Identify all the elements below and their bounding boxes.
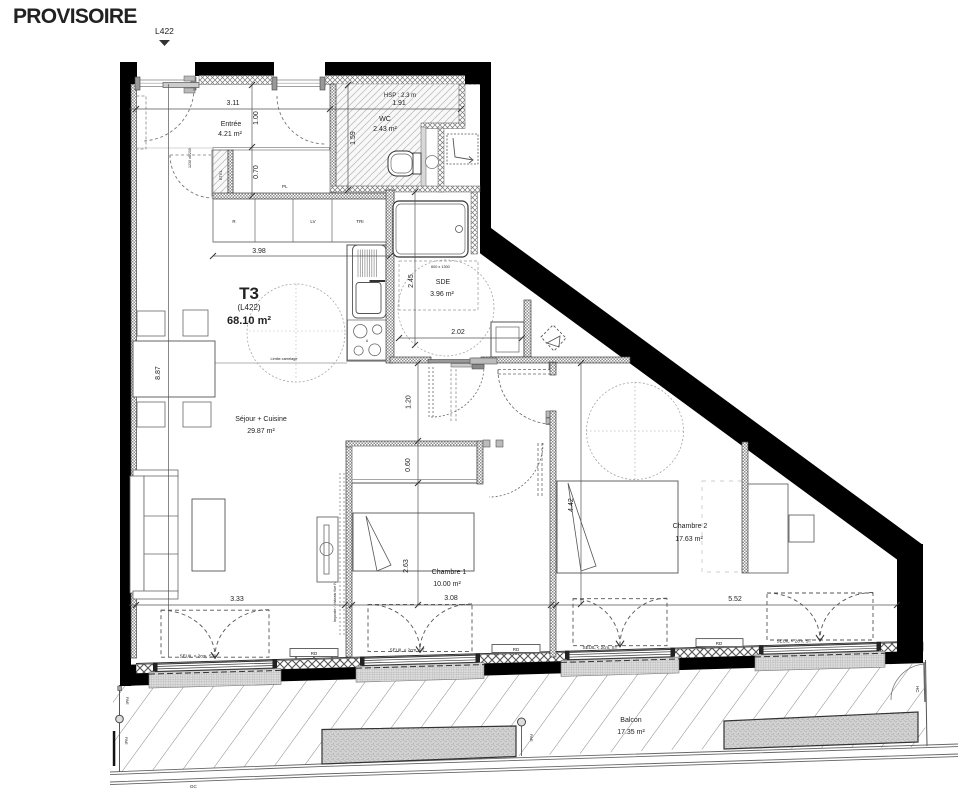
svg-text:0.60: 0.60 <box>405 458 412 472</box>
svg-text:SEUIL < 2cm, ST: SEUIL < 2cm, ST <box>777 639 812 644</box>
svg-text:T3: T3 <box>239 284 259 303</box>
svg-text:SDE: SDE <box>436 279 451 286</box>
svg-text:WC: WC <box>379 116 391 123</box>
svg-text:600 x 1300: 600 x 1300 <box>431 265 450 269</box>
svg-text:Entrée: Entrée <box>221 121 242 128</box>
svg-text:3.96 m²: 3.96 m² <box>430 291 454 298</box>
svg-text:SEUIL < 2cm, ST: SEUIL < 2cm, ST <box>180 654 215 659</box>
svg-text:PL: PL <box>282 184 288 189</box>
svg-text:L422: L422 <box>155 26 174 36</box>
svg-text:SEUIL < 2cm, ST: SEUIL < 2cm, ST <box>390 648 425 653</box>
svg-text:2.02: 2.02 <box>451 329 465 336</box>
svg-text:LV: LV <box>310 219 315 224</box>
svg-text:Séjour + Cuisine: Séjour + Cuisine <box>235 416 287 423</box>
svg-text:10.00 m²: 10.00 m² <box>433 581 461 588</box>
svg-text:1.20: 1.20 <box>406 395 413 409</box>
svg-text:1.00: 1.00 <box>253 111 260 125</box>
svg-text:3.33: 3.33 <box>230 596 244 603</box>
svg-text:4.42: 4.42 <box>568 498 575 512</box>
svg-text:5.52: 5.52 <box>728 596 742 603</box>
svg-text:RD: RD <box>716 641 723 646</box>
svg-text:29.87 m²: 29.87 m² <box>247 428 275 435</box>
svg-text:(L422): (L422) <box>237 303 260 312</box>
svg-text:3.98: 3.98 <box>252 248 266 255</box>
svg-text:PAE: PAE <box>124 737 129 745</box>
svg-text:2.63: 2.63 <box>403 559 410 573</box>
svg-text:PROVISOIRE: PROVISOIRE <box>13 5 137 28</box>
svg-text:Imposte / châssis fixe NF: Imposte / châssis fixe NF <box>333 579 337 622</box>
svg-text:Chambre 2: Chambre 2 <box>673 523 708 530</box>
svg-text:68.10 m²: 68.10 m² <box>227 315 271 327</box>
svg-text:GC: GC <box>190 784 198 789</box>
svg-text:SEUIL < 2cm, ST: SEUIL < 2cm, ST <box>583 645 618 650</box>
svg-text:HC: HC <box>915 686 920 693</box>
svg-text:4.21 m²: 4.21 m² <box>218 131 242 138</box>
svg-text:Chambre 1: Chambre 1 <box>432 569 467 576</box>
svg-text:8.87: 8.87 <box>155 366 162 380</box>
svg-text:HSP : 2.3 m: HSP : 2.3 m <box>384 93 416 99</box>
svg-text:PAE: PAE <box>529 734 534 742</box>
svg-text:Balcon: Balcon <box>620 717 642 724</box>
svg-text:17.35 m²: 17.35 m² <box>617 729 645 736</box>
svg-text:1.59: 1.59 <box>350 131 357 145</box>
svg-text:1.91: 1.91 <box>392 100 406 107</box>
svg-text:RD: RD <box>513 647 520 652</box>
svg-text:PAE: PAE <box>125 697 130 705</box>
svg-text:TRI: TRI <box>356 219 363 224</box>
svg-text:3.11: 3.11 <box>226 100 239 107</box>
svg-text:17.63 m²: 17.63 m² <box>675 536 703 543</box>
svg-text:ETEL: ETEL <box>218 169 223 180</box>
svg-text:2.45: 2.45 <box>408 274 415 288</box>
svg-text:0.70: 0.70 <box>253 165 260 179</box>
svg-text:2.43 m²: 2.43 m² <box>373 126 397 133</box>
svg-text:3.08: 3.08 <box>444 595 458 602</box>
svg-text:RD: RD <box>311 651 318 656</box>
svg-text:Limite carrelage: Limite carrelage <box>270 357 297 361</box>
svg-text:1230 x6/230: 1230 x6/230 <box>188 148 192 168</box>
